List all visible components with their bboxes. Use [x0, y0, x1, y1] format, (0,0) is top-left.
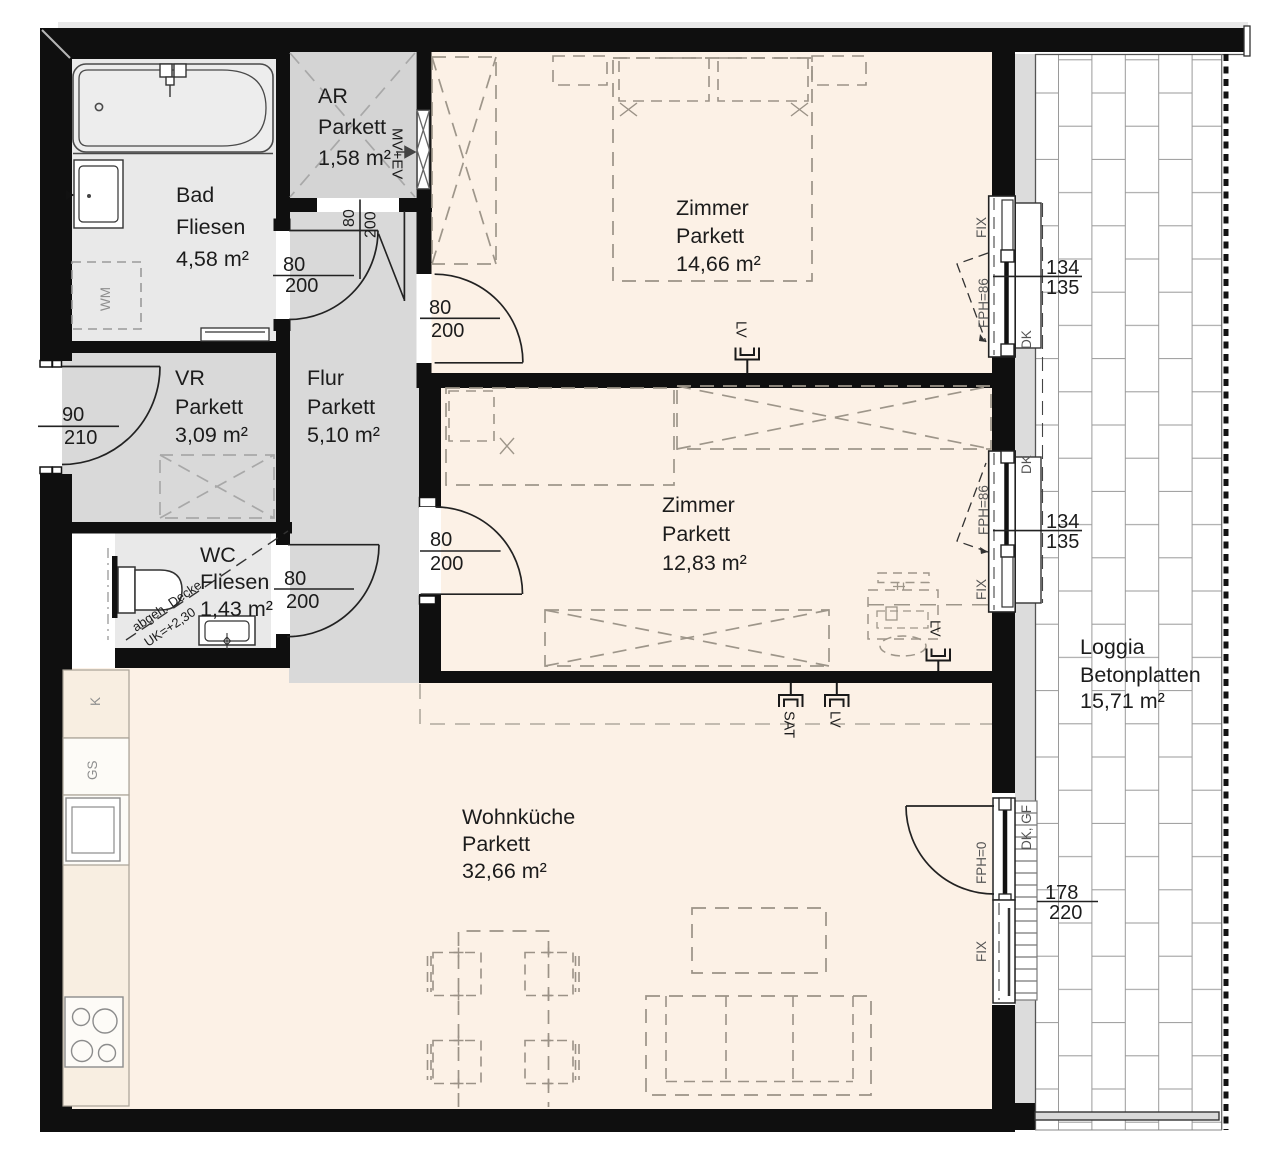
svg-text:LV: LV [733, 321, 749, 338]
svg-text:210: 210 [64, 427, 97, 449]
svg-text:200: 200 [286, 591, 319, 613]
svg-text:Flur: Flur [307, 366, 344, 390]
svg-text:DK: DK [1019, 455, 1034, 474]
svg-text:DK: DK [1019, 330, 1034, 349]
svg-text:Fliesen: Fliesen [200, 570, 269, 594]
svg-text:Parkett: Parkett [662, 522, 730, 546]
svg-text:Zimmer: Zimmer [676, 196, 749, 220]
svg-text:80: 80 [341, 209, 358, 227]
svg-text:Parkett: Parkett [175, 395, 243, 419]
svg-text:80: 80 [429, 297, 451, 319]
svg-text:200: 200 [430, 553, 463, 575]
svg-text:134: 134 [1046, 511, 1079, 533]
svg-text:Wohnküche: Wohnküche [462, 805, 575, 829]
svg-text:AR: AR [318, 84, 348, 108]
svg-text:135: 135 [1046, 531, 1079, 553]
svg-text:80: 80 [284, 568, 306, 590]
svg-text:WM: WM [98, 287, 113, 311]
svg-text:Zimmer: Zimmer [662, 493, 735, 517]
svg-text:FIX: FIX [974, 217, 989, 238]
svg-text:200: 200 [363, 211, 380, 238]
svg-text:FIX: FIX [974, 941, 989, 962]
svg-text:15,71 m²: 15,71 m² [1080, 689, 1165, 713]
svg-text:Fliesen: Fliesen [176, 215, 245, 239]
svg-text:FPH=86: FPH=86 [976, 278, 991, 328]
svg-text:Parkett: Parkett [676, 224, 744, 248]
svg-text:Loggia: Loggia [1080, 635, 1145, 659]
svg-text:1,43 m²: 1,43 m² [200, 597, 273, 621]
svg-text:135: 135 [1046, 277, 1079, 299]
svg-text:K: K [88, 697, 103, 706]
svg-text:200: 200 [431, 320, 464, 342]
svg-text:Parkett: Parkett [307, 395, 375, 419]
svg-text:Parkett: Parkett [462, 832, 530, 856]
svg-text:5,10 m²: 5,10 m² [307, 423, 380, 447]
svg-text:90: 90 [62, 404, 84, 426]
svg-text:LV: LV [927, 620, 943, 637]
svg-text:80: 80 [283, 254, 305, 276]
svg-text:LV: LV [827, 711, 843, 728]
svg-text:Parkett: Parkett [318, 115, 386, 139]
svg-text:VR: VR [175, 366, 205, 390]
svg-text:DK, GF: DK, GF [1019, 805, 1034, 850]
svg-text:12,83 m²: 12,83 m² [662, 551, 747, 575]
svg-text:200: 200 [285, 275, 318, 297]
svg-text:Bad: Bad [176, 183, 214, 207]
svg-text:80: 80 [430, 529, 452, 551]
svg-text:220: 220 [1049, 902, 1082, 924]
svg-text:Betonplatten: Betonplatten [1080, 663, 1201, 687]
svg-text:3,09 m²: 3,09 m² [175, 423, 248, 447]
svg-text:GS: GS [85, 760, 100, 780]
svg-text:14,66 m²: 14,66 m² [676, 252, 761, 276]
svg-text:FIX: FIX [974, 579, 989, 600]
svg-text:1,58 m²: 1,58 m² [318, 146, 391, 170]
svg-text:32,66 m²: 32,66 m² [462, 859, 547, 883]
svg-text:FPH=86: FPH=86 [976, 485, 991, 535]
svg-text:MV+EV: MV+EV [389, 128, 406, 179]
svg-text:WC: WC [200, 543, 236, 567]
svg-text:4,58 m²: 4,58 m² [176, 247, 249, 271]
svg-text:FPH=0: FPH=0 [974, 842, 989, 884]
svg-text:SAT: SAT [781, 711, 797, 738]
